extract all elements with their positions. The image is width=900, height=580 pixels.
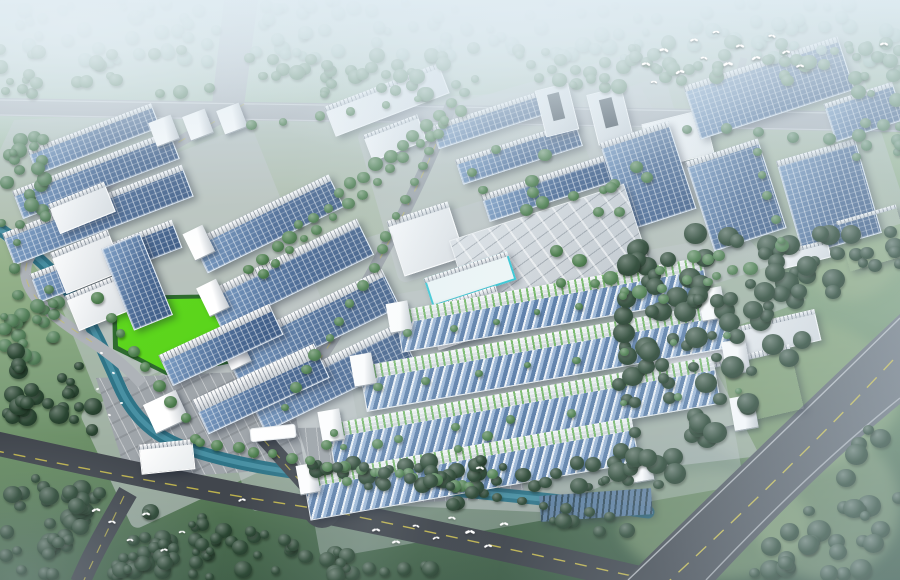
bird (476, 465, 485, 470)
bird (91, 507, 100, 512)
bird (372, 528, 381, 532)
bird (465, 529, 475, 534)
bird (484, 544, 493, 549)
bird (142, 512, 150, 516)
bird (448, 515, 456, 520)
bird (160, 548, 168, 553)
bird (751, 55, 761, 61)
bird (392, 540, 401, 544)
bird (126, 538, 133, 542)
bird (641, 61, 651, 67)
aerial-rendering (0, 0, 900, 580)
bird (736, 44, 745, 49)
bird (768, 33, 776, 38)
bird (723, 61, 733, 67)
bird (412, 524, 420, 529)
bird (796, 64, 804, 68)
bird (178, 530, 185, 534)
bird (712, 30, 719, 34)
bird (782, 49, 791, 54)
bird (499, 522, 508, 527)
birds-layer (0, 0, 900, 580)
bird (880, 42, 889, 47)
bird (238, 498, 246, 503)
bird (690, 38, 698, 42)
bird (675, 69, 685, 75)
bird (432, 536, 440, 540)
bird (700, 56, 708, 61)
bird (650, 80, 657, 84)
bird (659, 47, 669, 53)
bird (108, 519, 116, 524)
